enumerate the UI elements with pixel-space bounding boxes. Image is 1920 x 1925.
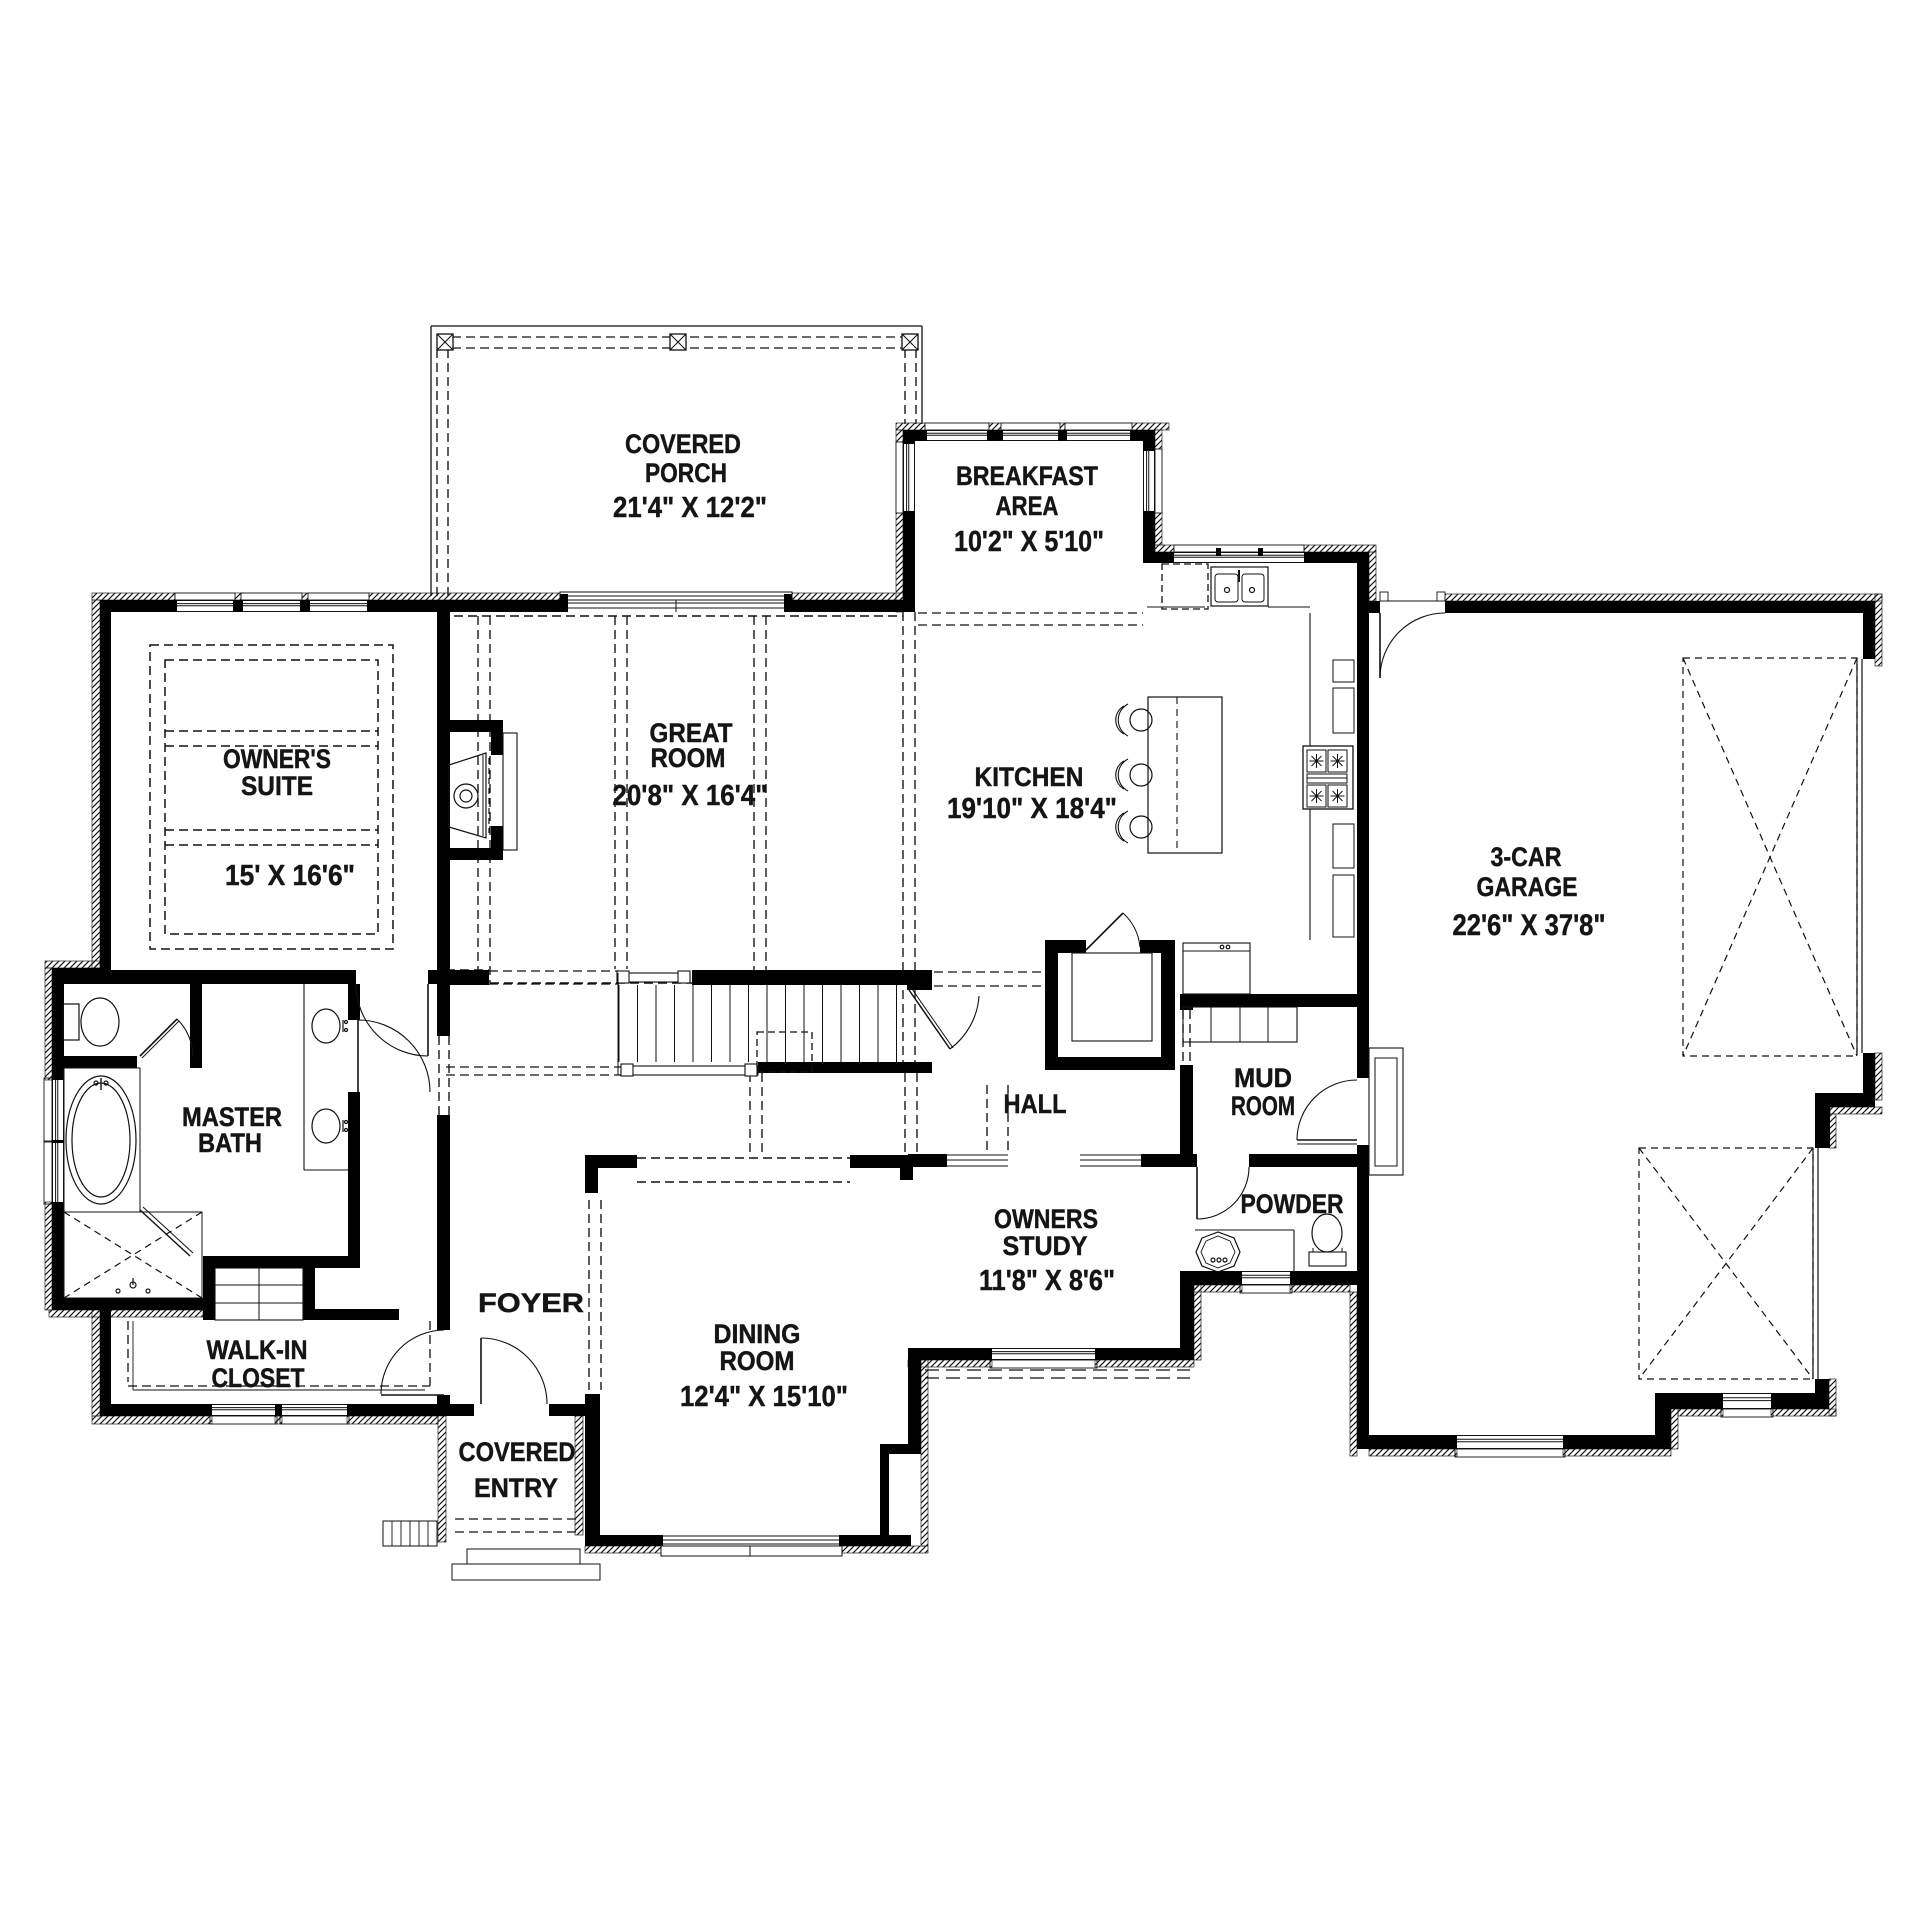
svg-text:ROOM: ROOM xyxy=(1231,1091,1295,1121)
svg-text:22'6" X 37'8": 22'6" X 37'8" xyxy=(1453,909,1606,942)
svg-text:BATH: BATH xyxy=(198,1128,262,1158)
svg-text:COVERED: COVERED xyxy=(625,429,741,459)
svg-text:DINING: DINING xyxy=(714,1319,801,1349)
svg-text:GARAGE: GARAGE xyxy=(1477,872,1578,902)
svg-text:AREA: AREA xyxy=(996,491,1059,521)
svg-text:OWNER'S: OWNER'S xyxy=(223,744,331,774)
svg-text:10'2" X 5'10": 10'2" X 5'10" xyxy=(954,526,1104,558)
svg-text:CLOSET: CLOSET xyxy=(212,1363,305,1393)
svg-text:FOYER: FOYER xyxy=(478,1288,584,1318)
svg-text:ENTRY: ENTRY xyxy=(474,1473,558,1503)
svg-text:HALL: HALL xyxy=(1004,1089,1067,1119)
svg-text:OWNERS: OWNERS xyxy=(994,1204,1098,1234)
svg-text:ROOM: ROOM xyxy=(651,743,726,773)
svg-text:MUD: MUD xyxy=(1234,1063,1292,1093)
svg-text:12'4" X 15'10": 12'4" X 15'10" xyxy=(680,1381,848,1413)
svg-text:PORCH: PORCH xyxy=(645,458,727,488)
svg-text:KITCHEN: KITCHEN xyxy=(975,762,1084,792)
svg-text:WALK-IN: WALK-IN xyxy=(207,1335,308,1365)
svg-text:19'10" X 18'4": 19'10" X 18'4" xyxy=(947,793,1117,825)
svg-text:BREAKFAST: BREAKFAST xyxy=(956,461,1098,491)
svg-text:COVERED: COVERED xyxy=(459,1437,576,1467)
svg-text:3-CAR: 3-CAR xyxy=(1491,842,1562,872)
svg-text:ROOM: ROOM xyxy=(720,1346,795,1376)
svg-text:15' X 16'6": 15' X 16'6" xyxy=(225,860,355,892)
svg-text:POWDER: POWDER xyxy=(1241,1189,1344,1219)
svg-text:21'4" X 12'2": 21'4" X 12'2" xyxy=(613,492,767,524)
svg-text:SUITE: SUITE xyxy=(241,771,313,801)
svg-text:11'8" X 8'6": 11'8" X 8'6" xyxy=(979,1265,1115,1297)
svg-text:STUDY: STUDY xyxy=(1003,1231,1088,1261)
svg-text:20'8" X 16'4": 20'8" X 16'4" xyxy=(613,780,768,812)
